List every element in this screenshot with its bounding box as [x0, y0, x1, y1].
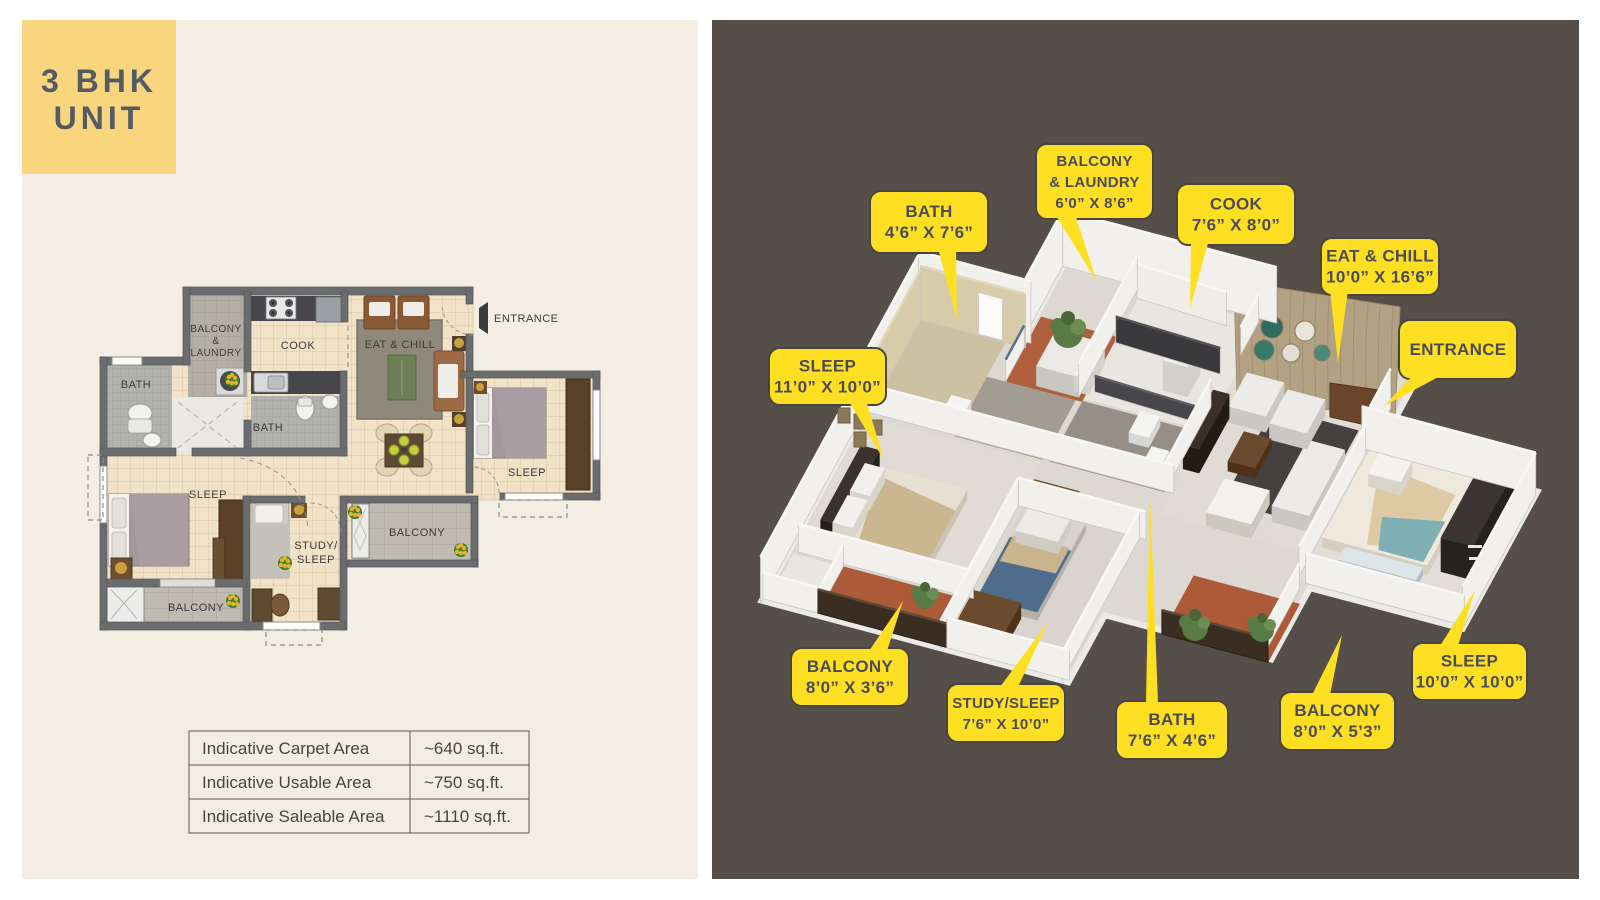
svg-text:SLEEP: SLEEP — [508, 467, 546, 479]
svg-text:BATH: BATH — [905, 202, 952, 221]
svg-text:BALCONY: BALCONY — [190, 324, 241, 335]
svg-text:8’0” X 3’6”: 8’0” X 3’6” — [806, 678, 894, 697]
svg-text:8’0” X 5’3”: 8’0” X 5’3” — [1293, 722, 1381, 741]
svg-text:Indicative Carpet Area: Indicative Carpet Area — [202, 739, 370, 758]
svg-text:ENTRANCE: ENTRANCE — [1410, 340, 1507, 359]
svg-text:STUDY/SLEEP: STUDY/SLEEP — [952, 695, 1060, 712]
svg-text:BATH: BATH — [121, 379, 152, 391]
svg-text:COOK: COOK — [1210, 195, 1263, 214]
svg-text:3 BHK: 3 BHK — [41, 63, 157, 99]
svg-text:SLEEP: SLEEP — [1441, 652, 1498, 671]
svg-text:Indicative Saleable Area: Indicative Saleable Area — [202, 807, 385, 826]
svg-text:BALCONY: BALCONY — [389, 527, 445, 539]
svg-text:~1110 sq.ft.: ~1110 sq.ft. — [424, 807, 511, 826]
svg-text:~750 sq.ft.: ~750 sq.ft. — [424, 773, 504, 792]
svg-text:EAT & CHILL: EAT & CHILL — [365, 339, 436, 351]
svg-text:EAT & CHILL: EAT & CHILL — [1326, 247, 1434, 266]
svg-text:BALCONY: BALCONY — [1056, 153, 1132, 170]
svg-text:7’6” X 4’6”: 7’6” X 4’6” — [1128, 731, 1216, 750]
svg-text:BALCONY: BALCONY — [168, 602, 224, 614]
svg-text:BALCONY: BALCONY — [807, 657, 894, 676]
svg-text:STUDY/: STUDY/ — [294, 540, 338, 552]
svg-text:SLEEP: SLEEP — [297, 554, 335, 566]
svg-text:6’0” X 8’6”: 6’0” X 8’6” — [1055, 195, 1133, 212]
svg-text:SLEEP: SLEEP — [799, 357, 856, 376]
svg-text:7’6” X 8’0”: 7’6” X 8’0” — [1192, 216, 1280, 235]
svg-text:10’0” X 10’0”: 10’0” X 10’0” — [1416, 673, 1524, 692]
svg-text:COOK: COOK — [281, 340, 316, 352]
svg-text:7’6” X 10’0”: 7’6” X 10’0” — [963, 716, 1050, 733]
svg-text:4’6” X 7’6”: 4’6” X 7’6” — [885, 223, 973, 242]
svg-text:SLEEP: SLEEP — [189, 489, 227, 501]
svg-text:10’0” X 16’6”: 10’0” X 16’6” — [1326, 268, 1434, 287]
svg-text:Indicative Usable Area: Indicative Usable Area — [202, 773, 372, 792]
svg-text:& LAUNDRY: & LAUNDRY — [1049, 174, 1139, 191]
svg-text:&: & — [212, 336, 219, 347]
svg-text:BALCONY: BALCONY — [1294, 701, 1381, 720]
svg-text:BATH: BATH — [253, 422, 284, 434]
svg-text:ENTRANCE: ENTRANCE — [494, 313, 559, 325]
svg-text:11’0” X 10’0”: 11’0” X 10’0” — [774, 378, 881, 397]
svg-text:UNIT: UNIT — [54, 100, 145, 136]
svg-text:~640 sq.ft.: ~640 sq.ft. — [424, 739, 504, 758]
svg-text:BATH: BATH — [1148, 710, 1195, 729]
svg-text:LAUNDRY: LAUNDRY — [190, 348, 241, 359]
